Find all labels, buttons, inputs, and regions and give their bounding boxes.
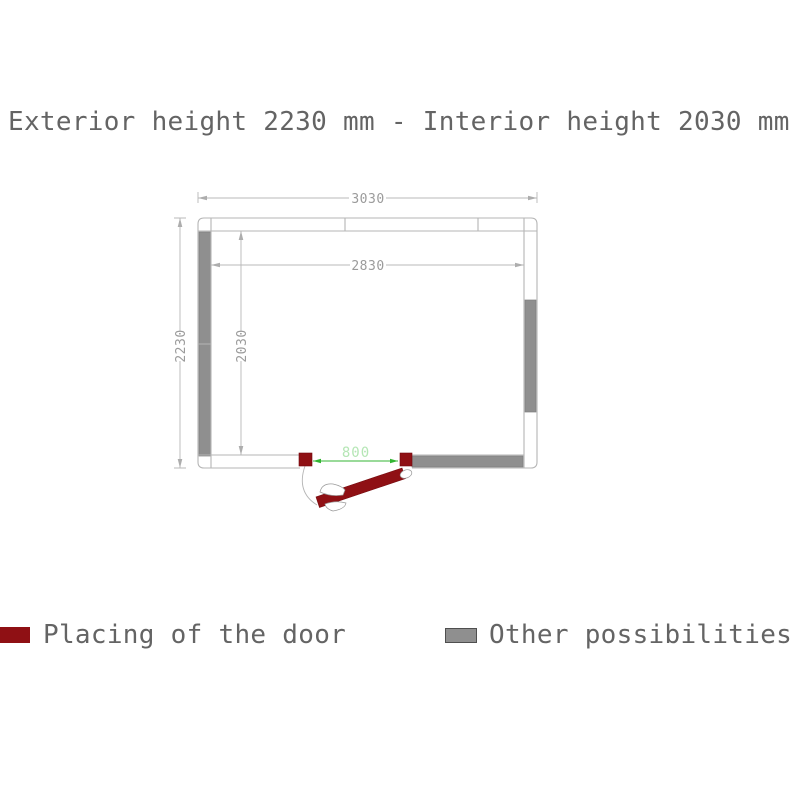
dim-arrow: [390, 459, 398, 463]
possibility-segment-left-lower: [199, 344, 211, 456]
dimension-arrows: [178, 196, 537, 468]
door-color-swatch: [0, 627, 30, 643]
legend-door-label: Placing of the door: [43, 620, 346, 650]
dim-arrow: [239, 446, 244, 455]
dim-arrow: [515, 263, 524, 268]
possibility-segment-bottom-right: [412, 456, 523, 467]
page-background: Exterior height 2230 mm - Interior heigh…: [0, 0, 800, 800]
possibility-segment-right: [525, 300, 536, 412]
dim-arrow: [313, 459, 321, 463]
door-handle-detail: [320, 484, 345, 496]
dimension-lines: [174, 192, 537, 468]
dim-arrow: [198, 196, 207, 201]
dim-arrow: [239, 231, 244, 240]
dim-label-door-width: 800: [342, 445, 370, 461]
door-jamb-right: [400, 453, 412, 466]
door-endcap-detail: [325, 502, 346, 511]
dim-arrow: [178, 459, 183, 468]
dim-label-exterior-depth: 2230: [174, 329, 189, 362]
dim-label-interior-depth: 2030: [235, 329, 250, 362]
legend-other-label: Other possibilities: [489, 620, 792, 650]
floor-plan-svg: 3030 2830 2230 2030 800: [0, 0, 800, 800]
dim-label-exterior-width: 3030: [351, 192, 384, 207]
legend-item-door: Placing of the door: [0, 620, 346, 650]
dim-label-interior-width: 2830: [351, 259, 384, 274]
dim-arrow: [528, 196, 537, 201]
legend-item-other: Other possibilities: [445, 620, 792, 650]
possibility-segment-left-upper: [199, 232, 211, 344]
door-width-dimension: 800: [313, 445, 398, 463]
door-jamb-left: [299, 453, 312, 466]
dim-arrow: [211, 263, 220, 268]
dim-arrow: [178, 218, 183, 227]
door-swing-arc: [302, 466, 317, 505]
other-color-swatch: [445, 628, 477, 643]
